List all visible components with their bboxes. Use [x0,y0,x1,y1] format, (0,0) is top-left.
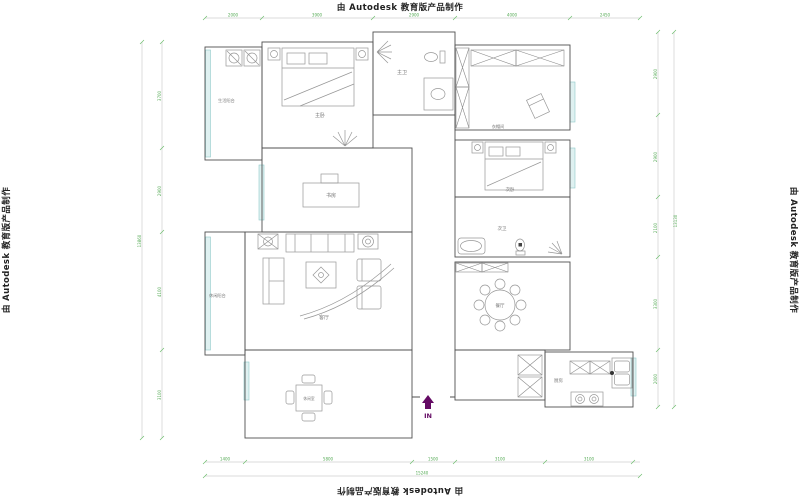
dim-label: 4100 [157,286,162,297]
second-bath-fixtures [458,238,562,255]
walls [205,32,633,438]
wall-extras [412,115,455,397]
dim-label: 2900 [157,185,162,196]
armchair [357,286,381,309]
faucet [610,371,614,375]
chair [321,174,338,183]
dim-label: 2450 [600,13,611,18]
entrance-in-label: IN [424,412,432,420]
dim-label: 3300 [653,298,658,309]
dim-label: 2000 [228,13,239,18]
label-dining-room: 餐厅 [496,302,505,309]
wall-living-room [245,232,412,350]
sofa-three-seat [286,234,354,252]
master-bedroom-furniture [268,48,368,146]
toilet [425,53,438,62]
dim-label: 2000 [653,373,658,384]
dim-label: 2900 [653,151,658,162]
kitchen-fixtures [570,358,632,406]
master-bath-fixtures [377,41,453,110]
label-kitchen: 厨房 [554,377,563,384]
wall-leisure-room [245,350,412,438]
wall-cloak-room [455,45,570,130]
wall-study [262,148,412,232]
door-swing [333,130,357,146]
windows [206,50,637,400]
sink-unit [612,358,632,388]
label-living-room: 客厅 [319,314,329,321]
wall-second-bath [455,197,570,257]
label-master-bedroom: 主卧 [315,112,325,119]
entrance-arrow-icon [422,395,434,409]
cloak-room-chair [527,94,550,119]
dim-total-label: 15240 [416,471,429,476]
second-bedroom-furniture [472,142,556,190]
label-master-bath: 主卫 [397,69,407,76]
window-utility-balcony [206,50,211,157]
rug-arc [300,264,394,319]
label-study: 书房 [326,192,336,199]
label-leisure-room: 休闲室 [303,396,315,401]
label-leisure-balcony: 休闲阳台 [209,292,226,299]
dim-label: 3100 [157,389,162,400]
label-utility-balcony: 生活阳台 [218,97,235,104]
dim-total-label: 13130 [673,214,678,227]
wall-utility-balcony [205,47,262,160]
window-cloak-room [570,82,575,122]
label-second-bedroom: 次卧 [506,186,515,193]
label-second-bath: 次卫 [498,225,507,232]
living-room-furniture [258,234,394,319]
dim-label: 1400 [220,457,231,462]
dimension-ticks [140,16,676,478]
armchair [357,259,381,281]
window-second-bedroom [570,148,575,188]
label-cloak-room: 衣帽间 [492,123,505,130]
dim-label: 2900 [653,68,658,79]
utility-balcony-washers [226,50,260,66]
window-study [259,165,264,220]
autocad-floorplan-page: 由 Autodesk 教育版产品制作 由 Autodesk 教育版产品制作 由 … [0,0,800,500]
wardrobe-cabinets [456,48,564,397]
shower-rays [377,41,392,63]
dim-label: 3700 [157,90,162,101]
floorplan-svg: 2000 3900 2900 4000 2450 1400 5800 1500 … [0,0,800,500]
wall-master-bath [373,32,455,115]
vanity [424,78,453,110]
dim-label: 4000 [507,13,518,18]
dim-label: 5800 [323,457,334,462]
dim-label: 2100 [653,222,658,233]
shower-rays [548,241,562,254]
dim-label: 3100 [495,457,506,462]
dim-total-label: 13860 [137,234,142,247]
wall-dining-room [455,262,570,350]
wall-master-bedroom [262,42,373,148]
entrance-marker: IN [422,395,434,420]
dim-label: 3900 [312,13,323,18]
study-furniture [303,174,359,207]
dim-label: 3100 [584,457,595,462]
coffee-table [306,262,336,288]
dim-label: 1500 [428,457,439,462]
dim-label: 2900 [409,13,420,18]
